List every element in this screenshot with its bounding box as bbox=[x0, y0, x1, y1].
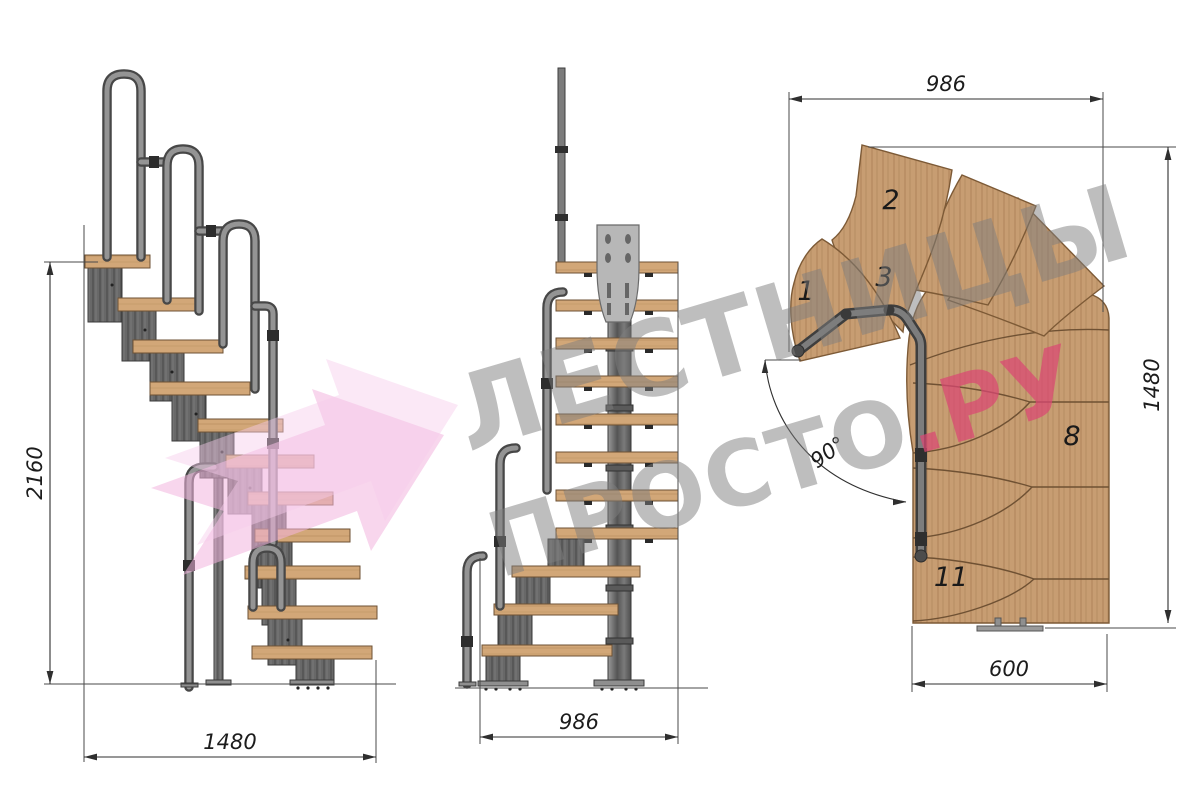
dim-label-plan-top-width: 986 bbox=[926, 72, 966, 96]
front-pole-flange bbox=[594, 680, 644, 686]
step-number-2: 2 bbox=[882, 185, 899, 216]
drawing-svg: 2160 1480 bbox=[0, 0, 1200, 807]
dim-label-plan-height: 1480 bbox=[1140, 358, 1164, 411]
dim-label-side-width: 1480 bbox=[203, 730, 256, 754]
front-base-flange bbox=[478, 681, 528, 686]
stairs-technical-drawing: 2160 1480 bbox=[0, 0, 1200, 807]
side-handrail bbox=[107, 74, 281, 687]
dim-label-front-width: 986 bbox=[559, 710, 599, 734]
front-handrail-rod bbox=[558, 68, 565, 264]
step-number-11: 11 bbox=[934, 562, 968, 593]
dim-label-side-height: 2160 bbox=[23, 446, 47, 499]
dim-label-plan-bottom-width: 600 bbox=[989, 657, 1029, 681]
